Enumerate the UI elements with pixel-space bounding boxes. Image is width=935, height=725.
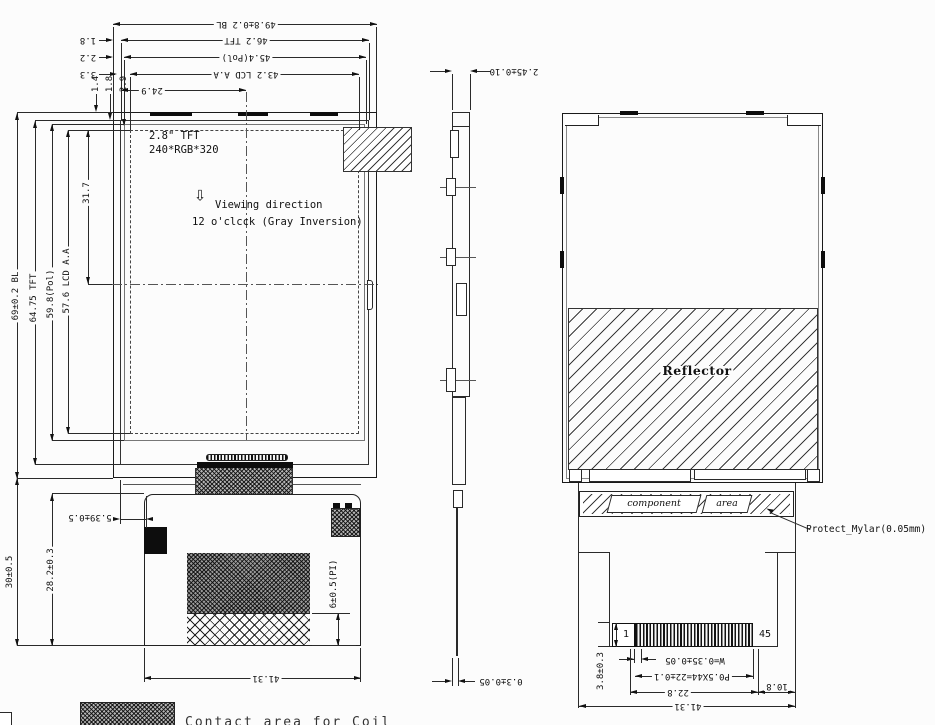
side-profile-lower	[452, 397, 466, 485]
dim-label: 69±0.2 BL	[11, 270, 21, 323]
side-recess	[450, 130, 459, 158]
component-label: component	[627, 499, 681, 509]
dim-label: 1.8	[105, 76, 115, 92]
center-line-vertical	[246, 92, 247, 440]
pin-last-label: 45	[759, 630, 771, 640]
dim-label: 10.8	[764, 681, 790, 691]
dim-label: 41.31	[250, 673, 281, 683]
dim-label: P0.5X44=22±0.1	[652, 671, 732, 681]
dim-label: 41.31	[672, 701, 703, 711]
frame-dash	[620, 111, 638, 115]
fpc-neck-edge	[609, 552, 610, 647]
dim-label: 46.2 TFT	[222, 35, 269, 45]
side-clip-mark	[560, 251, 564, 268]
frame-dash	[310, 112, 338, 116]
fpc-neck-edge	[777, 552, 778, 647]
side-clip	[446, 248, 456, 266]
dim-label: 64.75 TFT	[29, 272, 39, 325]
reflector-label: Reflector	[660, 366, 733, 376]
dim-label: 43.2 LCD A.A	[211, 69, 280, 79]
fpc-edge	[795, 483, 796, 708]
side-clip	[446, 178, 456, 196]
dim-label: W=0.35±0.05	[663, 655, 727, 665]
dim-label: 45.4(Pol)	[220, 52, 273, 62]
dim-label: 0.3±0.05	[479, 676, 522, 686]
fpc-tail-line	[456, 508, 458, 656]
dim-label: 24.9	[139, 85, 165, 95]
bottom-corner-slot	[807, 469, 820, 482]
viewing-direction-arrow-icon: ⇩	[194, 188, 206, 200]
dim-label: 2.2	[80, 52, 96, 62]
dim-label: 1.8	[80, 35, 96, 45]
ledge-line	[123, 484, 195, 485]
center-line-horizontal	[112, 284, 378, 285]
pin-strip-zebra	[635, 623, 753, 647]
side-recess	[456, 283, 467, 316]
ledge-line	[293, 484, 361, 485]
backlight-connector	[331, 508, 360, 537]
side-clip-mark	[821, 251, 825, 268]
dim-label: 5.39±0.5	[68, 512, 111, 522]
reflector-area	[568, 308, 818, 470]
dim-label: 59.8(Pol)	[46, 268, 56, 321]
frame-dash	[746, 111, 764, 115]
panel-resolution-label: 240*RGB*320	[149, 144, 219, 156]
area-label: area	[716, 499, 738, 509]
dim-label: 57.6 LCD A.A	[62, 246, 72, 315]
legend-caption: Contact area for Coil	[185, 712, 391, 725]
fpc-shoulder	[765, 552, 796, 553]
dim-label: 22.8	[665, 687, 691, 697]
dim-label: 3.8±0.3	[596, 650, 606, 692]
dim-label: 28.2±0.3	[46, 546, 56, 593]
bottom-slot	[694, 469, 806, 480]
dim-label: 49.8±0.2 BL	[214, 19, 278, 29]
dim-label: 2.9	[119, 76, 129, 92]
crosshatch-area	[187, 613, 310, 646]
panel-size-label: 2.8" TFT	[149, 130, 200, 142]
viewing-direction-label: Viewing direction	[215, 199, 322, 211]
contact-zebra-strip	[206, 454, 288, 461]
fpc-shoulder	[578, 552, 609, 553]
dim-label: 30±0.5	[5, 554, 15, 591]
dim-label: 1.4	[91, 76, 101, 92]
legend-swatch	[80, 702, 175, 725]
acf-bonding-area	[195, 468, 293, 494]
bottom-corner-slot	[569, 469, 582, 482]
fpc-black-component	[144, 527, 167, 554]
side-hook	[453, 490, 463, 508]
legend-caption-clip: Contact area for Coil	[185, 712, 485, 725]
active-area-outline	[130, 130, 359, 434]
dim-label: 2.45±0.10	[490, 66, 539, 76]
dim-label: 6±0.5(PI)	[329, 558, 339, 611]
bottom-slot	[589, 469, 691, 482]
side-clip	[446, 368, 456, 392]
corner-notch	[787, 115, 821, 126]
frame-dash	[150, 112, 192, 116]
clock-direction-label: 12 o'clcck (Gray Inversion)	[192, 216, 363, 228]
side-clip-mark	[821, 177, 825, 194]
frame-dash	[238, 112, 268, 116]
stiffener-area	[187, 553, 310, 613]
legend-partial-box	[0, 712, 12, 725]
side-cap-line	[452, 126, 470, 127]
dim-label: 31.7	[82, 180, 92, 206]
pin-first-label: 1	[623, 630, 629, 640]
corner-notch	[565, 115, 599, 126]
corner-tape-hatch	[343, 127, 412, 172]
side-clip-mark	[560, 177, 564, 194]
mylar-label: Protect_Mylar(0.05mm)	[806, 524, 926, 536]
lcd-module-engineering-drawing: 2.8" TFT 240*RGB*320 ⇩ Viewing direction…	[0, 0, 935, 725]
